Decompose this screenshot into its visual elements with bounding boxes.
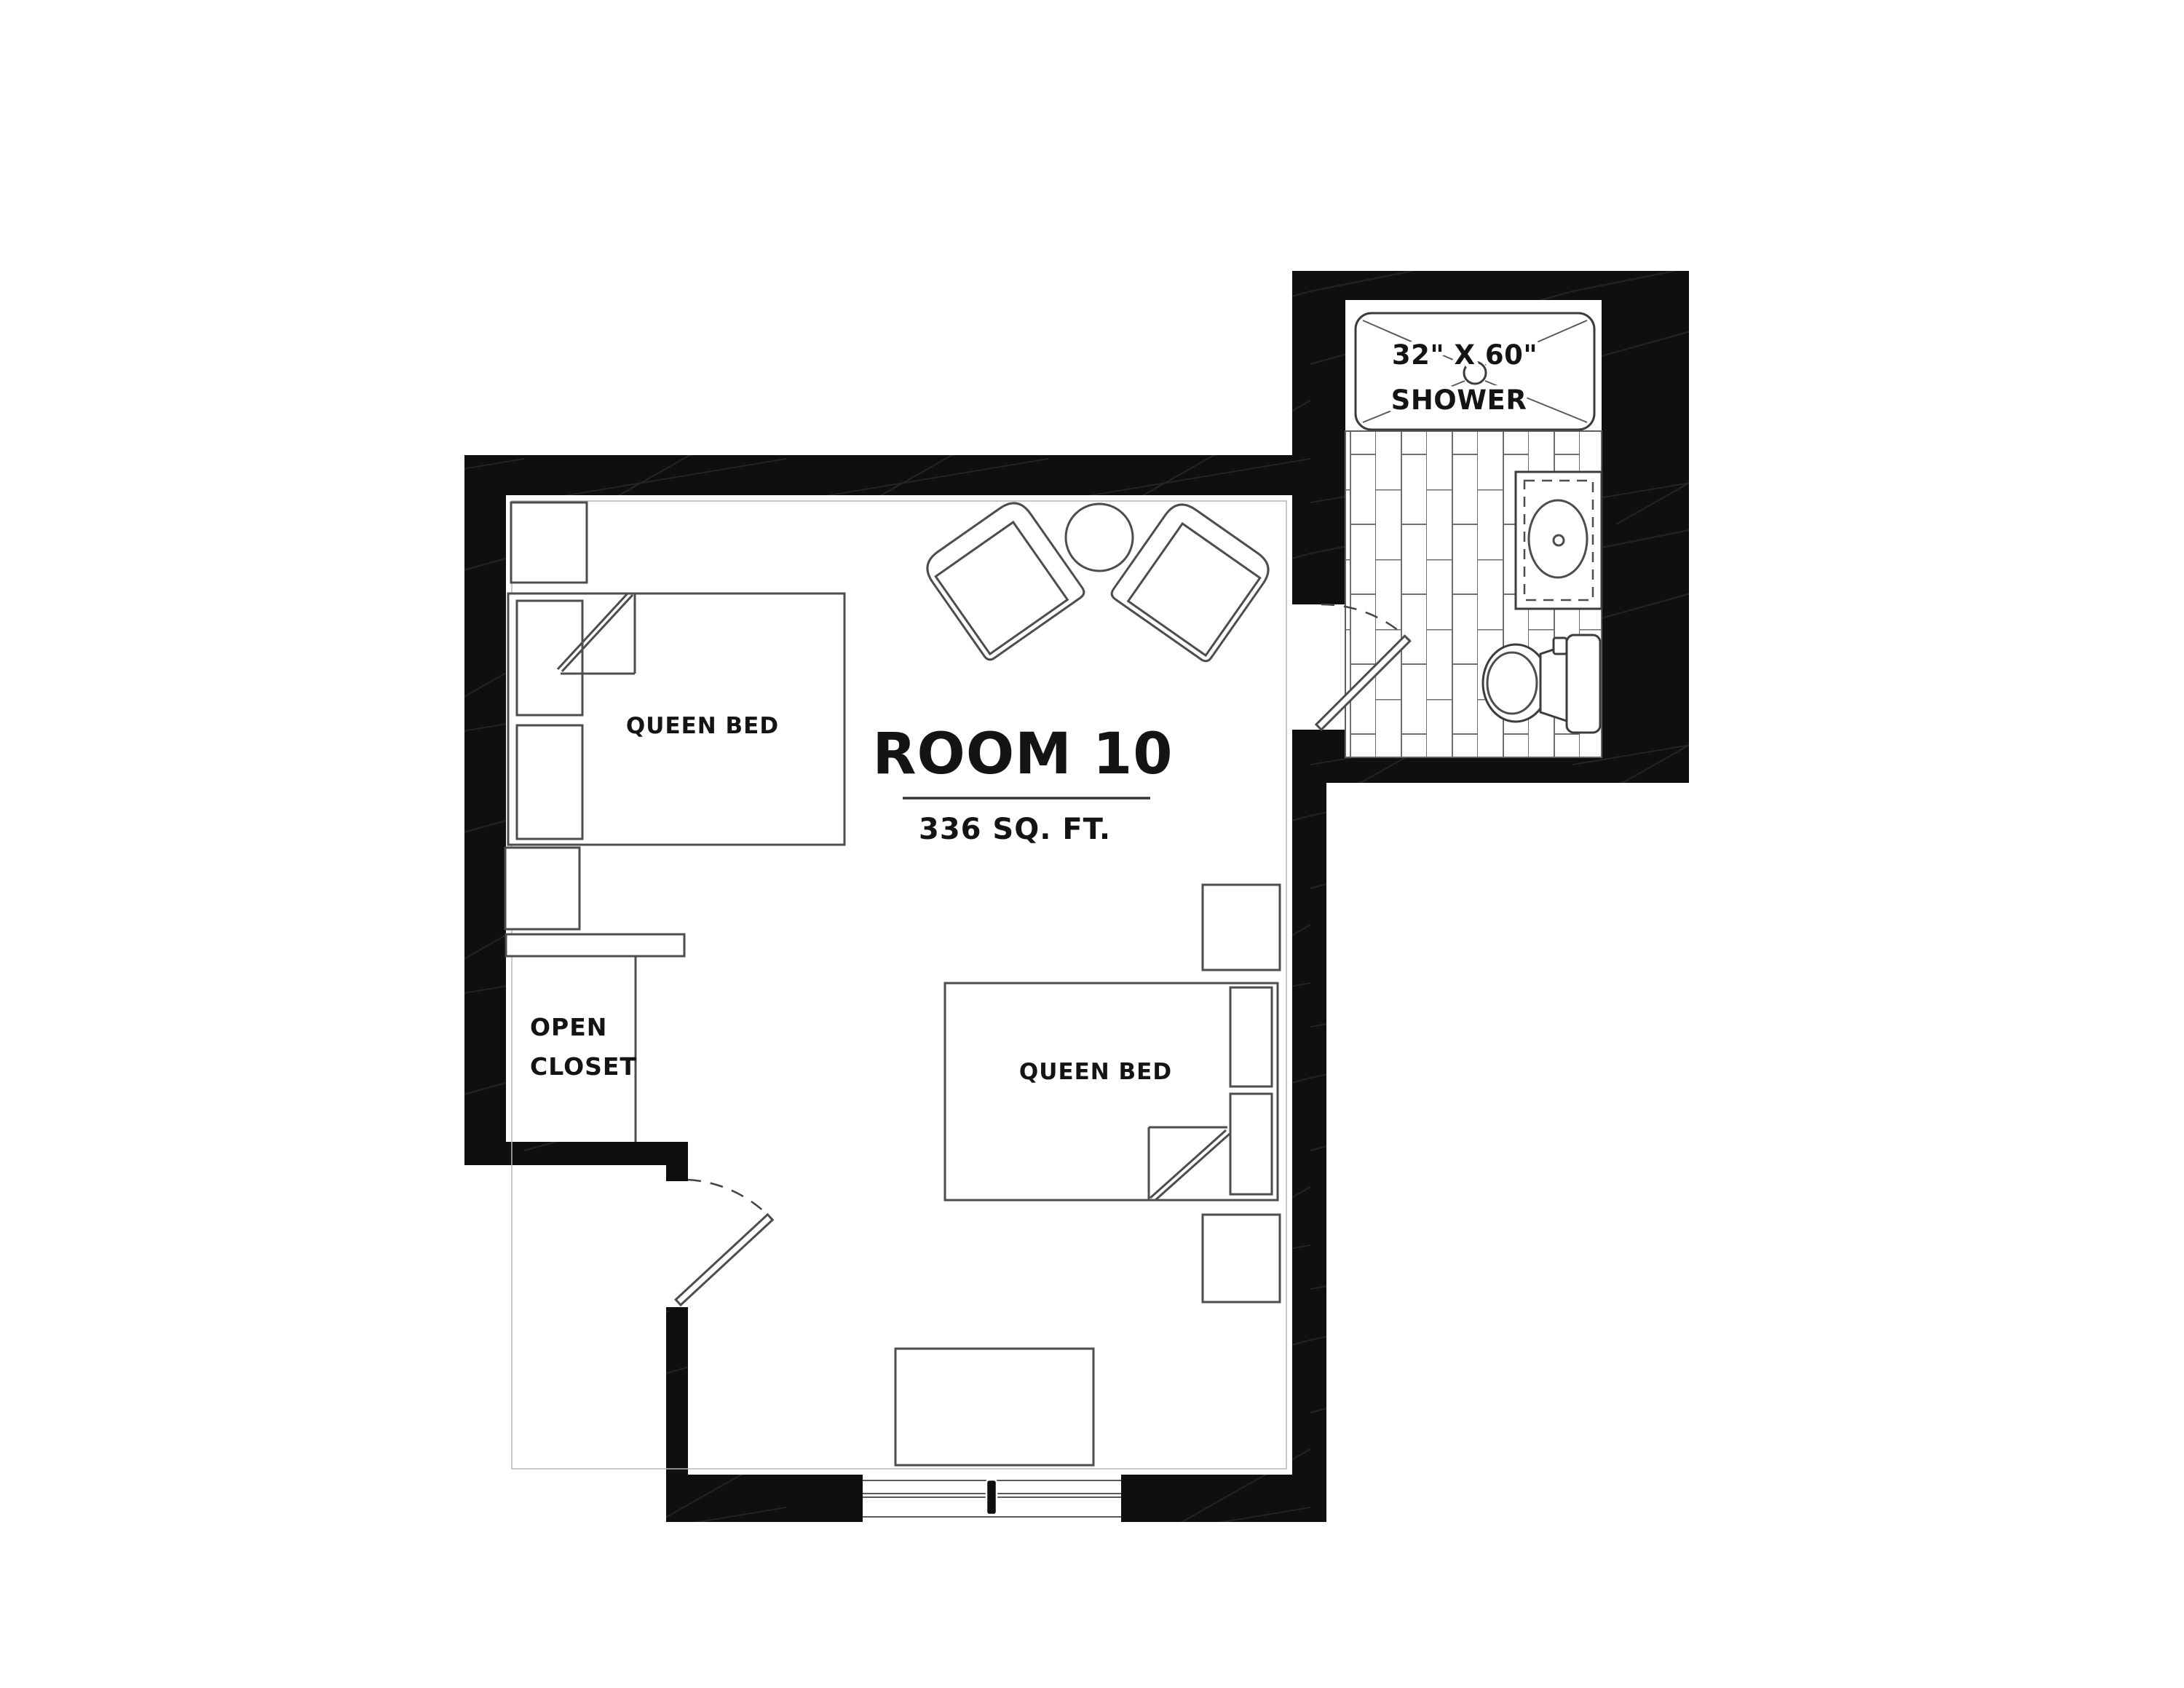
bathroom-sink: [1516, 472, 1602, 609]
queen-bed-1: QUEEN BED: [505, 502, 844, 929]
armchair-left: [920, 496, 1086, 662]
room-title: ROOM 10: [873, 722, 1174, 787]
entry-door: [676, 1180, 772, 1305]
wall-entry-step: [666, 1164, 688, 1181]
open-closet: OPEN CLOSET: [506, 934, 684, 1142]
wall-bath-left-lower: [1292, 730, 1345, 759]
wall-bath-right: [1602, 299, 1689, 759]
round-side-table: [1066, 504, 1133, 571]
bed-2-label: QUEEN BED: [1019, 1059, 1172, 1085]
room-area: 336 SQ. FT.: [919, 813, 1111, 846]
nightstand-4: [1203, 1215, 1280, 1302]
armchair-right: [1109, 497, 1275, 663]
wall-bath-top: [1292, 271, 1689, 300]
nightstand-3: [1203, 885, 1280, 970]
bed-2-mattress: [945, 983, 1278, 1200]
room-title-block: ROOM 10 336 SQ. FT.: [873, 722, 1174, 846]
bathroom: 32" X 60" SHOWER: [1316, 313, 1602, 757]
wall-top-main: [464, 455, 1345, 495]
queen-bed-2: QUEEN BED: [945, 885, 1280, 1302]
bed-2-pillow-1: [1230, 987, 1272, 1086]
toilet-bowl: [1483, 644, 1548, 722]
entry-door-swing-arc: [688, 1180, 772, 1220]
dresser: [895, 1349, 1093, 1465]
nightstand-1: [511, 502, 587, 583]
entry-door-leaf: [676, 1215, 772, 1305]
toilet-flush-lever: [1554, 638, 1567, 654]
wall-closet-bottom: [464, 1142, 688, 1165]
floor-plan-page: 32" X 60" SHOWER: [0, 0, 2184, 1688]
sitting-area: [920, 496, 1275, 663]
wall-bath-left-upper: [1292, 299, 1345, 604]
toilet-tank: [1567, 635, 1600, 733]
bed-1-label: QUEEN BED: [626, 713, 779, 739]
bed-2-pillow-2: [1230, 1094, 1272, 1194]
bed-1-pillow-1: [517, 601, 582, 715]
toilet-shoulder: [1540, 645, 1567, 721]
closet-shelf: [506, 934, 684, 956]
shower: 32" X 60" SHOWER: [1356, 313, 1594, 430]
wall-right-main: [1292, 781, 1326, 1522]
shower-name-label: SHOWER: [1391, 384, 1527, 416]
shower-size-label: 32" X 60": [1392, 339, 1538, 371]
bed-1-pillow-2: [517, 725, 582, 839]
window-mullion: [986, 1480, 997, 1515]
nightstand-2: [505, 848, 579, 929]
closet-label-line1: OPEN: [530, 1013, 607, 1041]
floor-plan: 32" X 60" SHOWER: [0, 0, 2184, 1688]
wall-bottom-left: [666, 1475, 863, 1522]
window: [863, 1475, 1121, 1522]
closet-label-line2: CLOSET: [530, 1052, 637, 1081]
wall-left-main: [464, 455, 506, 1165]
wall-bath-bottom: [1292, 757, 1689, 783]
main-room: QUEEN BED OPEN CLOSET ROOM 10 336 SQ: [505, 496, 1280, 1522]
